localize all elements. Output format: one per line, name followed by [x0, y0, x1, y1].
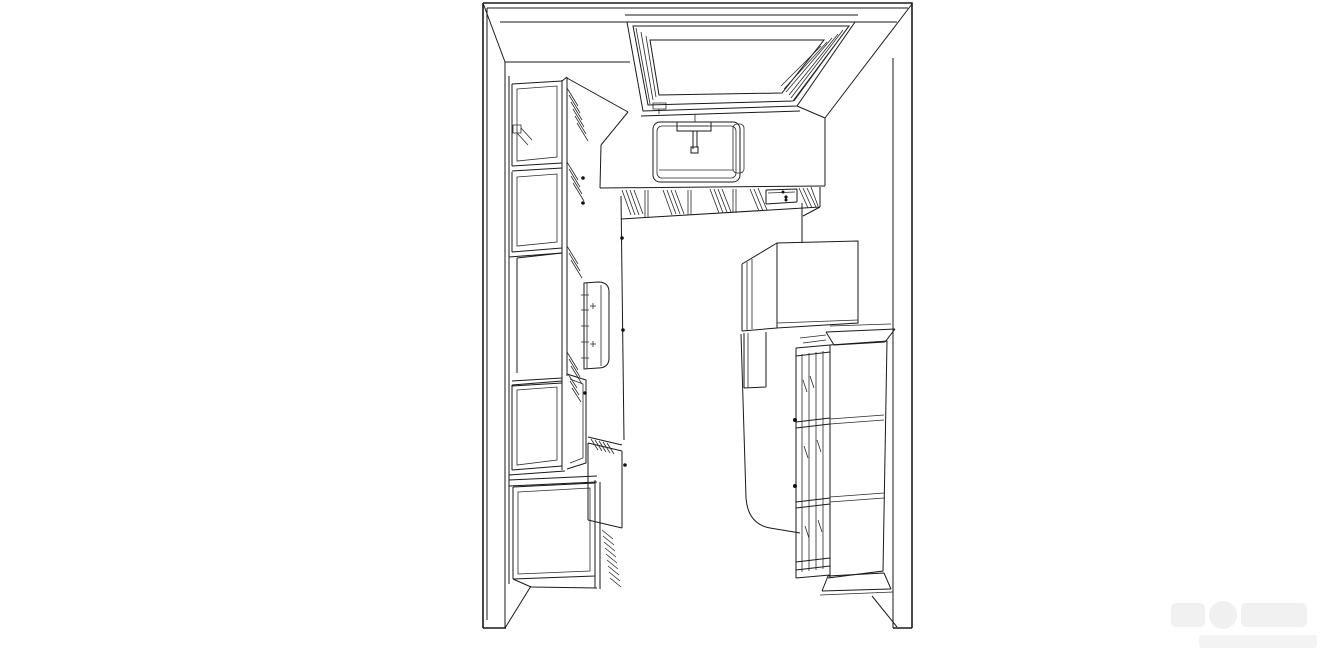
room-walls: [483, 3, 912, 628]
kitchen-plan-drawing: [0, 0, 1329, 665]
under-counter-cabinets: [621, 187, 820, 243]
line-drawing-canvas: [0, 0, 1329, 665]
watermark-logo-mark: [1171, 601, 1307, 629]
left-tall-cabinet-run: [509, 76, 627, 589]
wall-switch-symbol: [513, 125, 532, 145]
watermark-subtext: [1199, 635, 1317, 648]
sink-counter-run: [567, 78, 825, 243]
drawer-front: [766, 189, 797, 204]
display-hutch: [793, 324, 895, 595]
window: [625, 15, 858, 116]
watermark-logo: [1171, 599, 1321, 657]
range-cooktop: [581, 282, 609, 369]
refrigerator: [741, 241, 858, 533]
base-cabinet: [509, 476, 621, 589]
faucet: [677, 115, 711, 153]
